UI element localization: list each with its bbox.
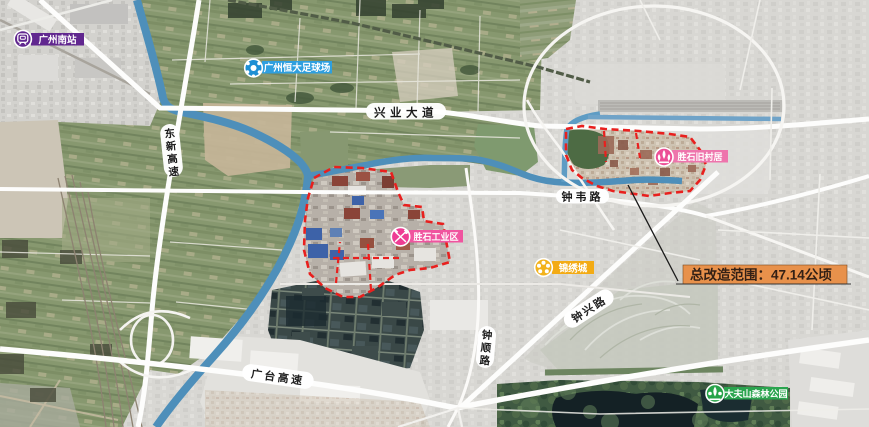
svg-text:锦绣城: 锦绣城 — [559, 263, 588, 275]
svg-text:胜石工业区: 胜石工业区 — [412, 231, 458, 242]
svg-text:广州恒大足球场: 广州恒大足球场 — [264, 62, 331, 74]
svg-text:广州南站: 广州南站 — [38, 34, 77, 46]
svg-text:兴业大道: 兴业大道 — [374, 106, 438, 120]
svg-text:胜石旧村居: 胜石旧村居 — [676, 151, 722, 162]
svg-text:大夫山森林公园: 大夫山森林公园 — [724, 388, 787, 399]
svg-text:钟韦路: 钟韦路 — [562, 190, 604, 204]
svg-text:总改造范围：47.14公顷: 总改造范围：47.14公顷 — [690, 267, 832, 283]
